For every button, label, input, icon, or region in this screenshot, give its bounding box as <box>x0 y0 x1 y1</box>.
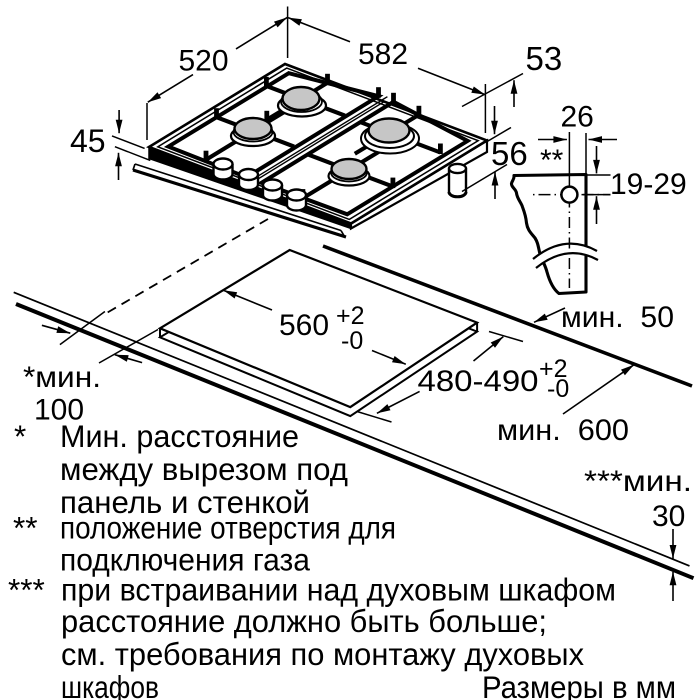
svg-text:положение отверстия для: положение отверстия для <box>60 510 396 546</box>
svg-text:мин. 50: мин. 50 <box>561 301 674 334</box>
svg-text:см. требования по монтажу духо: см. требования по монтажу духовых <box>61 636 584 672</box>
svg-text:между вырезом под: между вырезом под <box>60 451 348 487</box>
svg-text:26: 26 <box>561 100 594 133</box>
svg-text:+2: +2 <box>336 302 365 330</box>
svg-text:*: * <box>14 418 26 454</box>
svg-text:480-490: 480-490 <box>418 365 539 398</box>
svg-text:-0: -0 <box>547 375 569 403</box>
svg-text:**: ** <box>13 510 38 546</box>
svg-text:-0: -0 <box>341 327 363 355</box>
svg-text:*мин.: *мин. <box>23 361 101 394</box>
svg-text:***мин.: ***мин. <box>584 465 692 498</box>
svg-text:582: 582 <box>358 38 408 71</box>
svg-text:Мин. расстояние: Мин. расстояние <box>60 418 299 454</box>
svg-text:53: 53 <box>526 40 563 77</box>
svg-text:520: 520 <box>179 45 229 78</box>
svg-text:19-29: 19-29 <box>610 168 687 201</box>
svg-text:шкафов: шкафов <box>61 669 159 700</box>
svg-text:**: ** <box>540 144 564 177</box>
svg-text:***: *** <box>8 572 45 608</box>
svg-text:45: 45 <box>70 123 106 159</box>
svg-text:Размеры в мм: Размеры в мм <box>482 669 676 700</box>
svg-text:мин. 600: мин. 600 <box>497 414 629 447</box>
svg-text:560: 560 <box>279 309 329 342</box>
svg-text:расстояние должно быть больше;: расстояние должно быть больше; <box>61 603 547 639</box>
svg-text:30: 30 <box>652 500 685 533</box>
svg-text:56: 56 <box>491 135 528 172</box>
